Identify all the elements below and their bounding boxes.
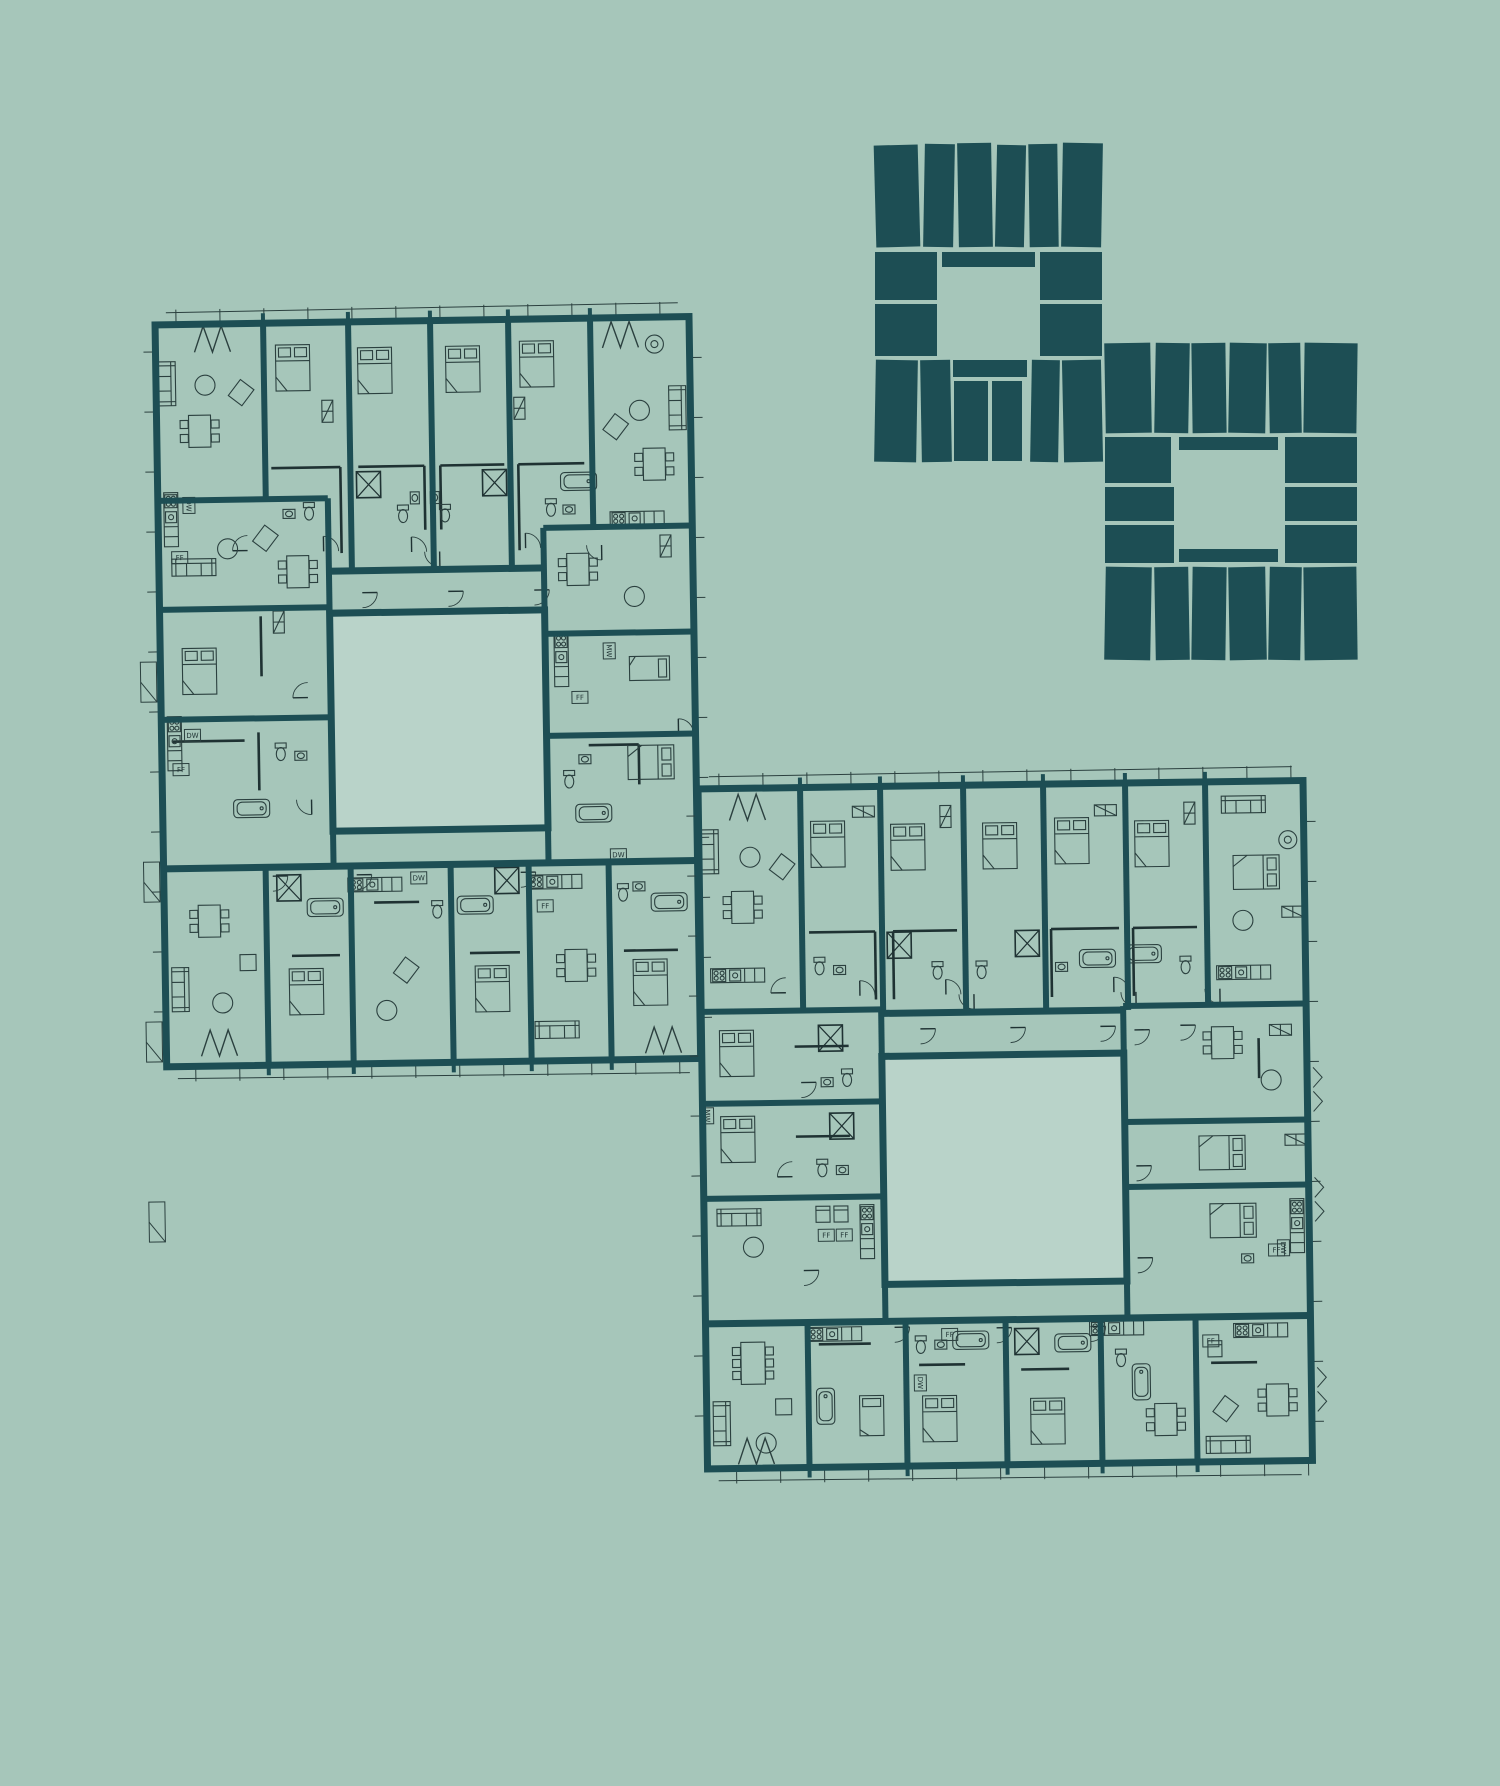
massing-unit bbox=[995, 145, 1026, 248]
massing-unit bbox=[992, 381, 1022, 461]
massing-unit bbox=[1105, 437, 1171, 483]
courtyard bbox=[330, 610, 548, 831]
massing-unit bbox=[953, 360, 1027, 377]
massing-unit bbox=[1179, 437, 1278, 450]
massing-unit bbox=[1040, 252, 1102, 300]
massing-unit bbox=[1228, 343, 1267, 434]
massing-unit bbox=[1061, 143, 1103, 248]
massing-unit bbox=[1268, 567, 1302, 661]
massing-unit bbox=[1303, 567, 1357, 661]
massing-unit bbox=[1191, 343, 1226, 433]
svg-text:FF: FF bbox=[541, 902, 549, 910]
plan-drawing: DWFFFFDWDWFFMWFFDWFFFFDWFFFFDWMWFF bbox=[0, 0, 1500, 1786]
appliance-label: MW bbox=[603, 643, 615, 659]
massing-unit bbox=[1062, 360, 1103, 463]
massing-unit bbox=[1191, 567, 1226, 660]
massing-unit bbox=[874, 144, 921, 247]
architectural-sheet: DWFFFFDWDWFFMWFFDWFFFFDWFFFFDWMWFF bbox=[0, 0, 1500, 1786]
massing-unit bbox=[1154, 567, 1190, 661]
massing-unit bbox=[1154, 343, 1190, 434]
svg-text:FF: FF bbox=[176, 554, 184, 562]
svg-text:DW: DW bbox=[413, 874, 426, 882]
svg-text:FF: FF bbox=[576, 694, 584, 702]
svg-text:FF: FF bbox=[840, 1231, 848, 1239]
svg-text:DW: DW bbox=[612, 851, 625, 859]
massing-unit bbox=[874, 360, 918, 463]
massing-unit bbox=[1040, 304, 1102, 356]
massing-unit bbox=[1285, 525, 1357, 563]
massing-unit bbox=[1104, 343, 1152, 434]
massing-unit bbox=[954, 381, 988, 461]
svg-text:FF: FF bbox=[822, 1232, 830, 1240]
massing-unit bbox=[875, 304, 937, 356]
svg-text:DW: DW bbox=[186, 732, 199, 740]
massing-unit bbox=[1105, 525, 1174, 563]
svg-text:FF: FF bbox=[177, 766, 185, 774]
svg-text:FF: FF bbox=[1272, 1246, 1280, 1254]
courtyard bbox=[882, 1053, 1127, 1284]
massing-unit bbox=[1105, 487, 1174, 521]
massing-unit bbox=[942, 252, 1035, 267]
massing-unit bbox=[957, 143, 993, 248]
massing-unit bbox=[1028, 144, 1058, 247]
svg-text:MW: MW bbox=[605, 644, 613, 657]
massing-unit bbox=[1179, 549, 1278, 562]
massing-unit bbox=[923, 144, 955, 248]
massing-unit bbox=[1104, 567, 1152, 661]
appliance-label: DW bbox=[184, 729, 200, 741]
massing-unit bbox=[1030, 360, 1060, 462]
svg-text:FF: FF bbox=[1207, 1337, 1215, 1345]
background bbox=[0, 0, 1500, 1786]
svg-text:DW: DW bbox=[916, 1377, 924, 1390]
appliance-label: DW bbox=[914, 1375, 926, 1391]
massing-unit bbox=[1285, 437, 1357, 483]
svg-text:FF: FF bbox=[946, 1331, 954, 1339]
massing-unit bbox=[1285, 487, 1357, 521]
appliance-label: DW bbox=[411, 872, 427, 884]
massing-unit bbox=[1228, 567, 1267, 661]
massing-unit bbox=[875, 252, 937, 300]
massing-unit bbox=[920, 360, 952, 463]
massing-unit bbox=[1268, 343, 1302, 434]
massing-unit bbox=[1303, 343, 1357, 434]
